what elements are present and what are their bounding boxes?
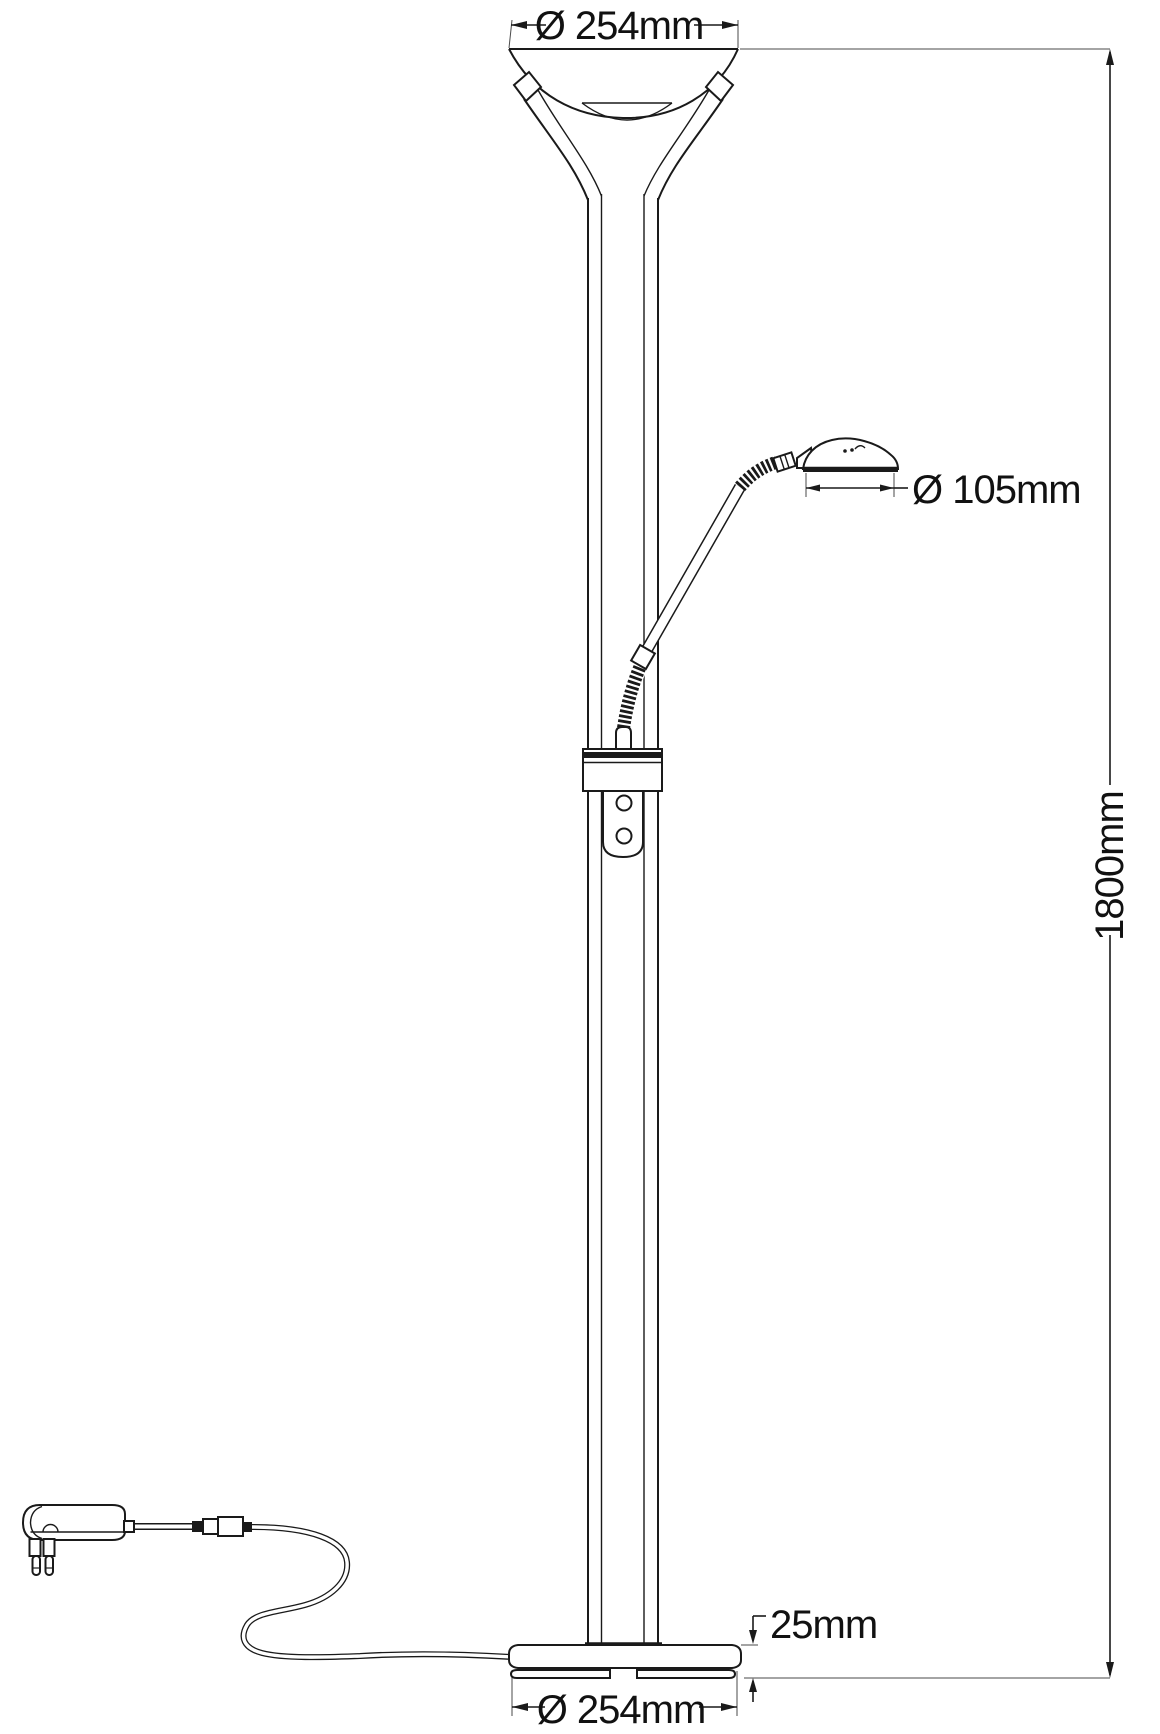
inline-connector (192, 1517, 252, 1536)
shade-underside (509, 49, 738, 118)
pin-base-left (30, 1539, 41, 1556)
pin-left (33, 1556, 41, 1575)
power-plug-pins (30, 1539, 55, 1575)
pin-base-right (44, 1539, 55, 1556)
extension-lines (509, 20, 1110, 1716)
arrowhead-left (806, 485, 820, 492)
head-dome (803, 438, 898, 469)
arm-ferrule (616, 727, 631, 749)
arrowhead-left (512, 1703, 528, 1711)
stem-right-outer (658, 99, 723, 200)
head-vent-dot-1 (843, 449, 847, 453)
connector-socket (218, 1517, 243, 1536)
mounting-collar (583, 749, 662, 857)
collar-band (583, 752, 662, 758)
uplighter-shade (509, 49, 738, 200)
adapter-cable-nib (124, 1521, 134, 1532)
arrowhead-right (722, 21, 738, 29)
arrowhead-right (721, 1703, 737, 1711)
arrowhead-left (511, 21, 527, 29)
connector-collar (203, 1519, 218, 1534)
adapter-body (23, 1505, 125, 1540)
pin-right (46, 1556, 54, 1575)
height-label: 1800mm (1088, 791, 1132, 941)
shade-diameter-label: Ø 254mm (535, 4, 704, 48)
pole (588, 194, 658, 1645)
arrowhead-bottom (1106, 1662, 1114, 1678)
base-slab (509, 1645, 741, 1668)
stem-left-outer (524, 99, 588, 200)
base-diameter-label: Ø 254mm (537, 1688, 706, 1732)
power-adapter (23, 1505, 252, 1575)
cable-run-outline (244, 1527, 512, 1657)
base (509, 1644, 741, 1678)
dim-base-diameter: Ø 254mm (512, 1688, 737, 1732)
reading-head (797, 438, 898, 471)
arrowhead-up (749, 1678, 757, 1692)
base-pad-left (511, 1670, 610, 1678)
head-connector (773, 452, 795, 471)
cable-run-core (244, 1527, 512, 1657)
technical-drawing: Ø 254mm Ø 105mm 1800mm 25mm Ø 254mm (0, 0, 1160, 1734)
stem-right-inner (644, 90, 709, 196)
arrowhead-top (1106, 49, 1114, 65)
connector-exit-nib (243, 1522, 252, 1532)
arrowhead-right (880, 485, 894, 492)
head-diameter-label: Ø 105mm (912, 468, 1081, 512)
shade-clip-right (706, 72, 733, 101)
arrowhead-down (749, 1630, 757, 1644)
connector-plug-tip (192, 1521, 203, 1532)
shade-clip-left (514, 72, 541, 101)
base-pad-right (637, 1670, 735, 1678)
arm-tube-fill (641, 487, 740, 660)
dim-shade-diameter: Ø 254mm (511, 4, 738, 48)
dim-head-diameter: Ø 105mm (806, 468, 1081, 512)
power-cable (244, 1527, 512, 1657)
base-thickness-label: 25mm (770, 1603, 877, 1647)
dim-overall-height: 1800mm (1088, 49, 1132, 1678)
head-vent-dot-2 (850, 448, 854, 452)
dim-base-thickness: 25mm (749, 1603, 877, 1702)
reading-arm (616, 452, 796, 749)
